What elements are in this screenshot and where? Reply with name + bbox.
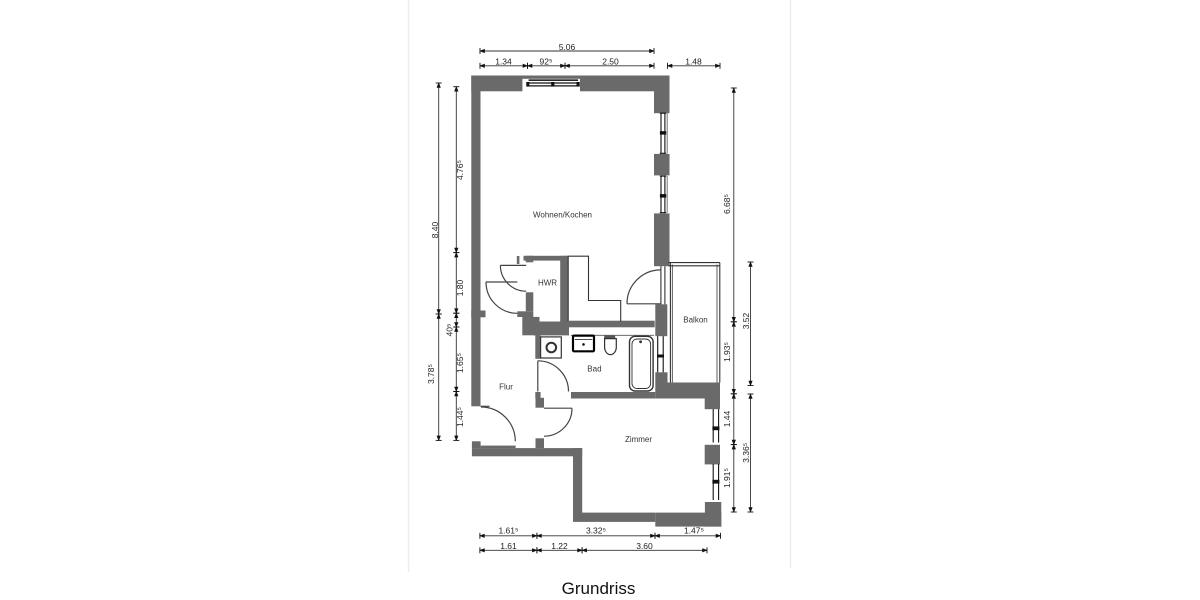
- svg-text:1.61: 1.61: [500, 541, 517, 551]
- svg-text:1.34: 1.34: [495, 57, 512, 67]
- svg-text:HWR: HWR: [538, 279, 557, 288]
- svg-text:1.44: 1.44: [722, 410, 732, 427]
- svg-text:1.80: 1.80: [455, 279, 465, 296]
- svg-text:3.36⁵: 3.36⁵: [741, 443, 751, 463]
- svg-text:1.48: 1.48: [685, 57, 702, 67]
- svg-text:1.44⁵: 1.44⁵: [455, 407, 465, 427]
- svg-text:5.06: 5.06: [559, 42, 576, 52]
- svg-text:Zimmer: Zimmer: [625, 435, 652, 444]
- svg-text:1.61⁵: 1.61⁵: [498, 526, 518, 536]
- svg-text:Balkon: Balkon: [683, 315, 707, 324]
- svg-text:2.50: 2.50: [602, 57, 619, 67]
- svg-text:1.91⁵: 1.91⁵: [722, 468, 732, 488]
- svg-text:Grundriss: Grundriss: [562, 579, 636, 598]
- svg-text:1.22: 1.22: [551, 541, 568, 551]
- svg-text:1.93⁵: 1.93⁵: [722, 342, 732, 362]
- svg-text:1.47⁵: 1.47⁵: [684, 526, 704, 536]
- svg-text:Flur: Flur: [499, 383, 513, 392]
- svg-text:3.60: 3.60: [636, 541, 653, 551]
- svg-text:8.40: 8.40: [430, 221, 440, 238]
- svg-text:3.78⁵: 3.78⁵: [426, 364, 436, 384]
- svg-text:Bad: Bad: [587, 365, 601, 374]
- svg-text:4.76⁵: 4.76⁵: [455, 160, 465, 180]
- svg-text:40⁵: 40⁵: [445, 324, 455, 337]
- svg-text:Wohnen/Kochen: Wohnen/Kochen: [533, 211, 592, 220]
- svg-text:1.65⁵: 1.65⁵: [455, 353, 465, 373]
- svg-text:3.32⁵: 3.32⁵: [586, 526, 606, 536]
- svg-text:3.52: 3.52: [741, 312, 751, 329]
- svg-text:6.68⁵: 6.68⁵: [722, 194, 732, 214]
- svg-text:92⁵: 92⁵: [540, 57, 553, 67]
